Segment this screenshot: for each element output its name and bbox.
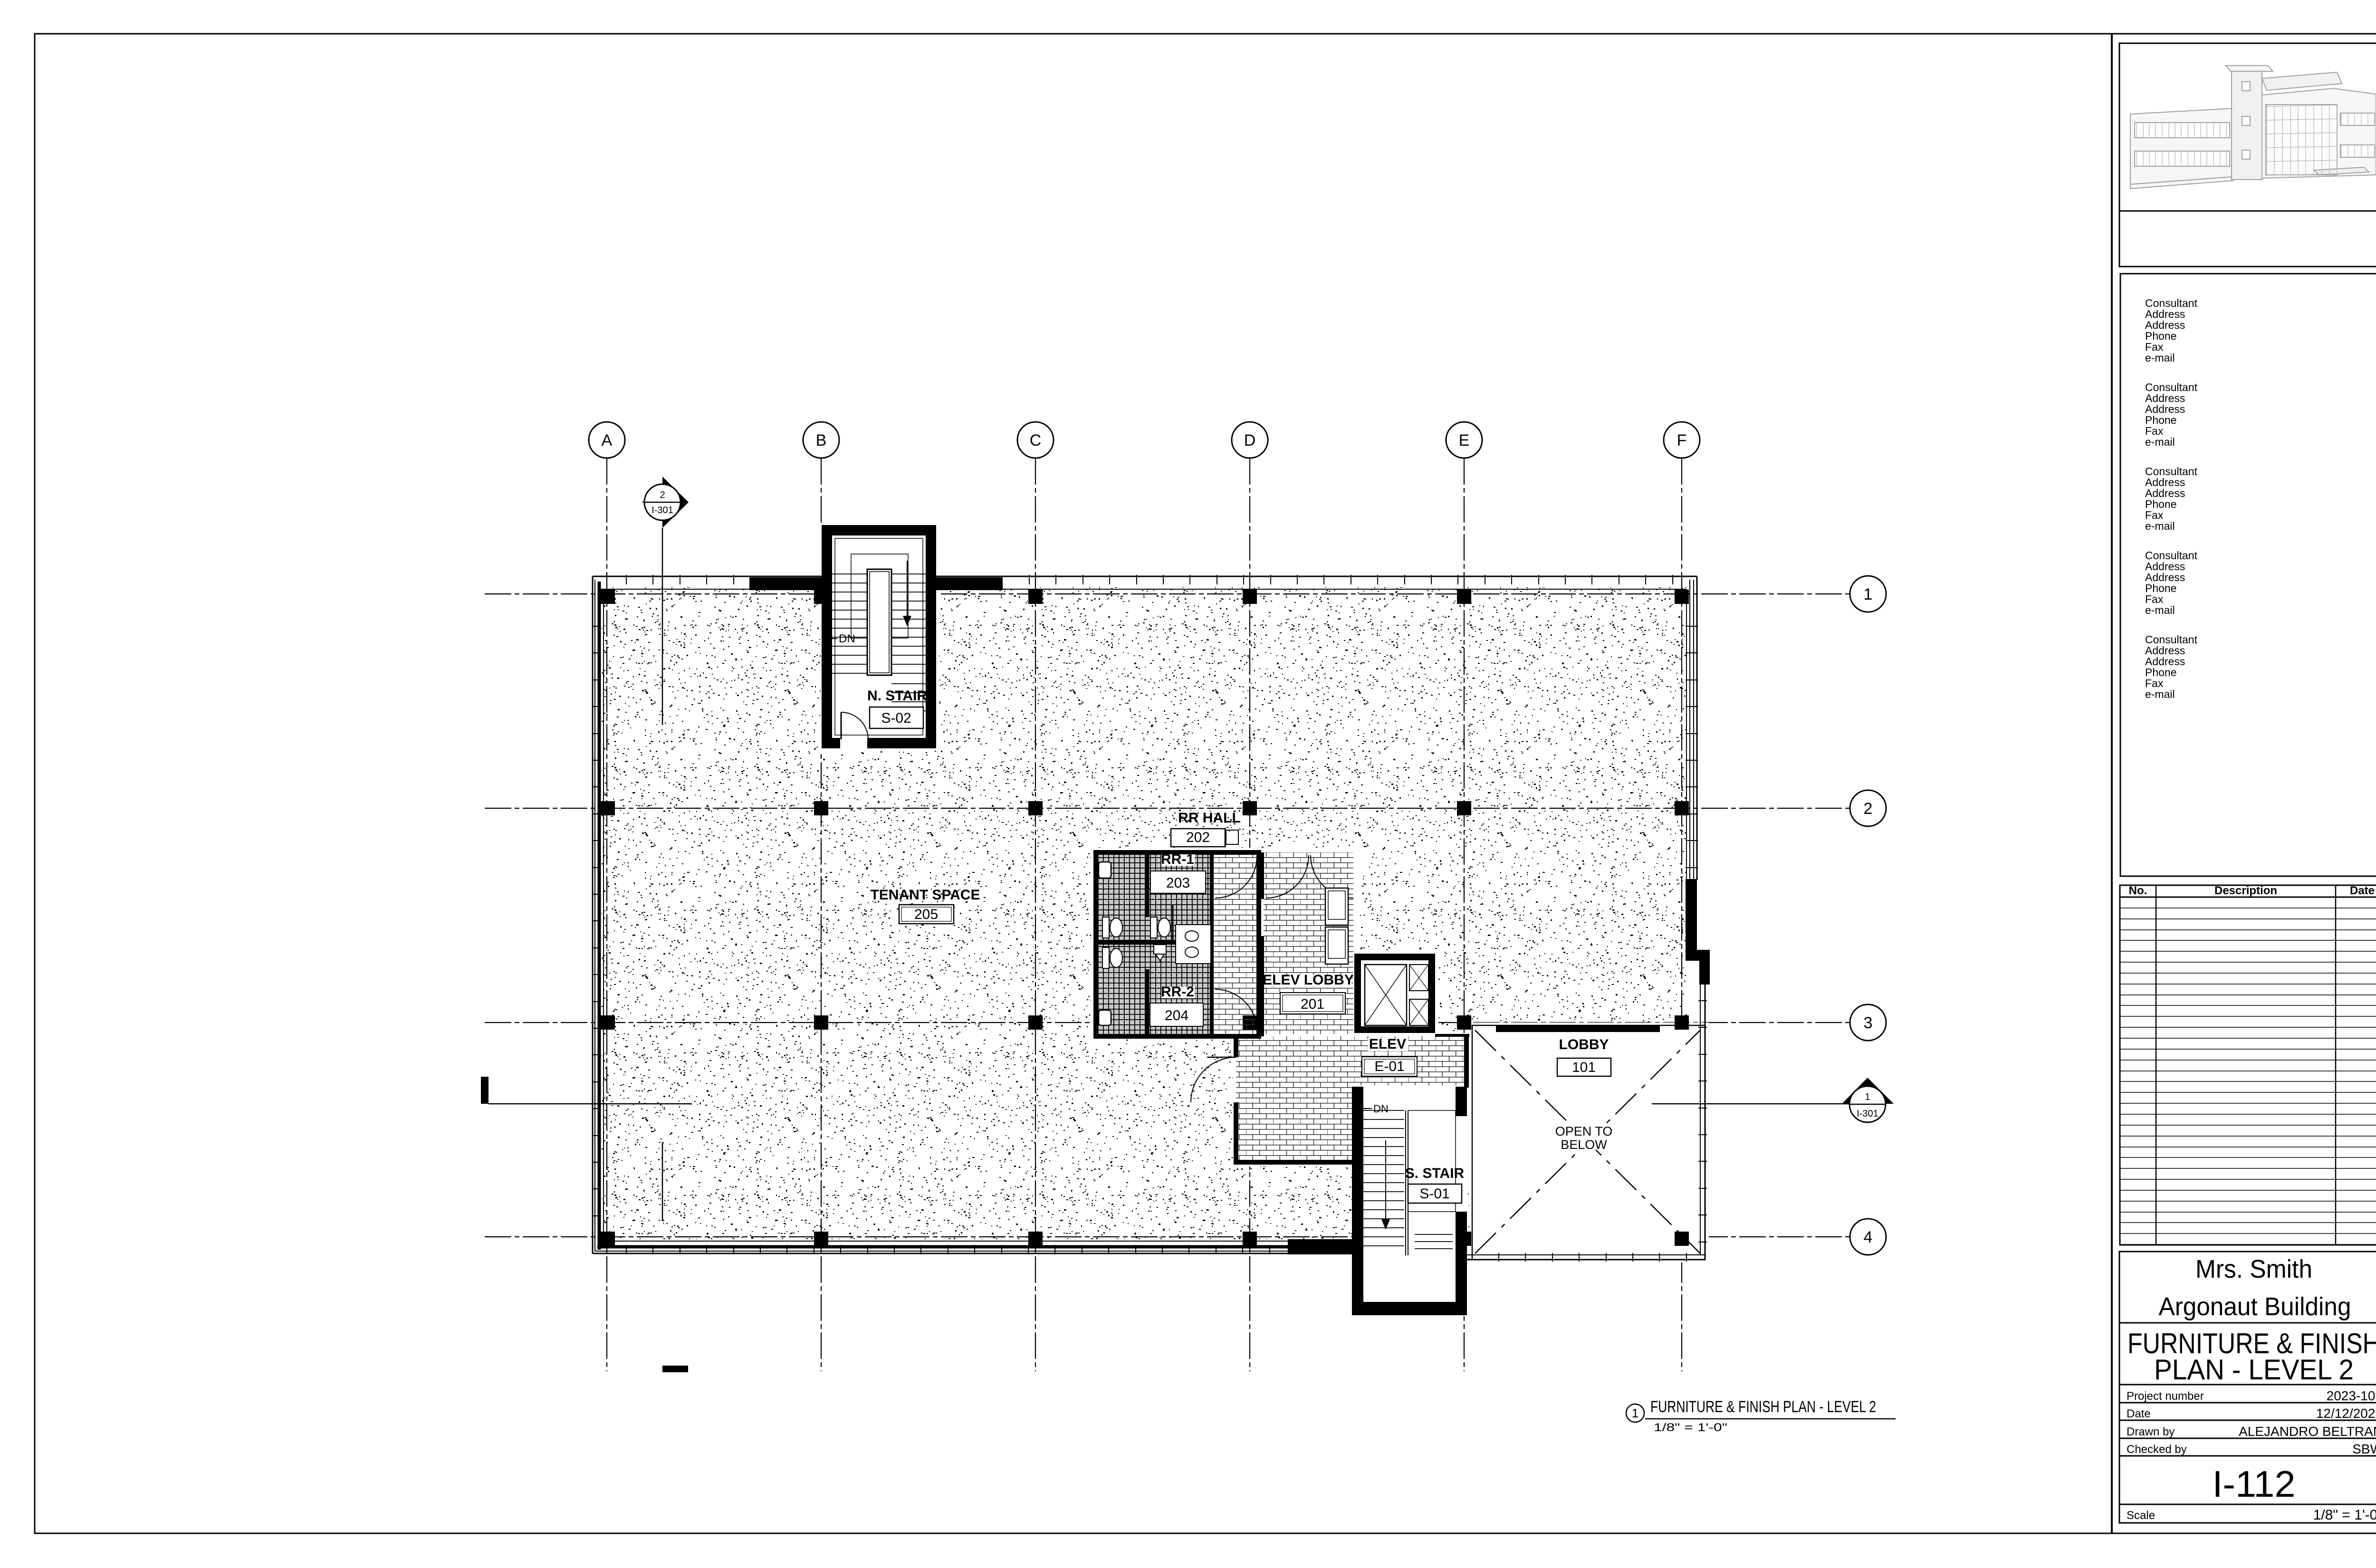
svg-text:Date: Date <box>2127 1407 2151 1420</box>
svg-text:202: 202 <box>1186 830 1210 845</box>
svg-text:e-mail: e-mail <box>2145 436 2175 448</box>
svg-text:ALEJANDRO BELTRAN: ALEJANDRO BELTRAN <box>2239 1424 2376 1439</box>
svg-text:e-mail: e-mail <box>2145 688 2175 700</box>
svg-text:C: C <box>1030 431 1042 449</box>
svg-text:RR-2: RR-2 <box>1161 984 1194 1000</box>
svg-text:ELEV: ELEV <box>1369 1036 1406 1052</box>
svg-text:101: 101 <box>1572 1060 1596 1075</box>
svg-text:I-301: I-301 <box>1857 1109 1878 1119</box>
svg-text:Mrs. Smith: Mrs. Smith <box>2195 1255 2312 1283</box>
svg-text:DN: DN <box>1373 1103 1389 1115</box>
svg-text:1: 1 <box>1864 585 1873 603</box>
svg-text:204: 204 <box>1165 1008 1188 1023</box>
svg-text:No.: No. <box>2129 884 2147 897</box>
svg-text:I-112: I-112 <box>2213 1463 2296 1505</box>
svg-text:Description: Description <box>2214 884 2277 897</box>
svg-text:E: E <box>1459 431 1470 449</box>
svg-text:RR-1: RR-1 <box>1161 851 1194 867</box>
svg-text:2: 2 <box>1864 800 1873 818</box>
svg-text:1/8" = 1'-0": 1/8" = 1'-0" <box>1654 1421 1727 1434</box>
svg-text:201: 201 <box>1301 996 1324 1012</box>
svg-text:F: F <box>1677 431 1687 449</box>
svg-text:PLAN - LEVEL 2: PLAN - LEVEL 2 <box>2154 1354 2354 1386</box>
svg-text:SBW: SBW <box>2352 1442 2376 1456</box>
svg-text:e-mail: e-mail <box>2145 520 2175 532</box>
svg-text:1/8" = 1'-0": 1/8" = 1'-0" <box>2313 1507 2376 1523</box>
svg-text:D: D <box>1244 431 1256 449</box>
svg-text:S-01: S-01 <box>1419 1186 1449 1202</box>
svg-text:2: 2 <box>660 490 665 500</box>
svg-text:3: 3 <box>1864 1014 1873 1032</box>
svg-text:OPEN TO: OPEN TO <box>1555 1124 1613 1138</box>
svg-text:203: 203 <box>1166 875 1190 891</box>
svg-text:TENANT SPACE: TENANT SPACE <box>870 887 980 903</box>
svg-text:A: A <box>602 431 613 449</box>
svg-text:1: 1 <box>1632 1406 1638 1420</box>
svg-text:e-mail: e-mail <box>2145 352 2175 364</box>
svg-text:e-mail: e-mail <box>2145 604 2175 616</box>
svg-text:S. STAIR: S. STAIR <box>1405 1166 1465 1181</box>
svg-text:205: 205 <box>914 907 938 922</box>
svg-text:1: 1 <box>1865 1092 1870 1102</box>
svg-text:B: B <box>816 431 827 449</box>
svg-text:N. STAIR: N. STAIR <box>867 688 927 704</box>
svg-text:E-01: E-01 <box>1374 1059 1404 1074</box>
svg-text:DN: DN <box>839 632 855 645</box>
svg-text:Project number: Project number <box>2127 1390 2204 1403</box>
svg-text:Drawn by: Drawn by <box>2127 1425 2175 1438</box>
svg-text:BELOW: BELOW <box>1561 1138 1607 1152</box>
svg-text:Argonaut Building: Argonaut Building <box>2159 1292 2351 1321</box>
svg-text:4: 4 <box>1864 1228 1873 1246</box>
svg-text:Scale: Scale <box>2127 1509 2155 1522</box>
svg-text:S-02: S-02 <box>881 710 911 726</box>
svg-text:ELEV LOBBY: ELEV LOBBY <box>1263 972 1354 988</box>
svg-text:2023-101: 2023-101 <box>2327 1388 2376 1403</box>
svg-text:Checked by: Checked by <box>2127 1443 2187 1456</box>
svg-text:LOBBY: LOBBY <box>1559 1037 1609 1052</box>
svg-text:I-301: I-301 <box>651 505 673 516</box>
svg-text:12/12/2023: 12/12/2023 <box>2316 1406 2376 1421</box>
svg-text:RR HALL: RR HALL <box>1178 810 1241 826</box>
svg-text:FURNITURE & FINISH PLAN - LEVE: FURNITURE & FINISH PLAN - LEVEL 2 <box>1650 1398 1876 1416</box>
svg-text:Date: Date <box>2350 884 2375 897</box>
